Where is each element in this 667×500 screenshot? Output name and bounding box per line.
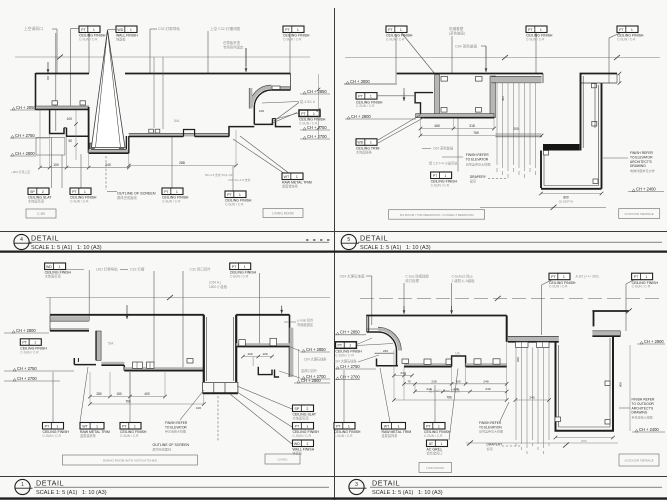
svg-text:FINISH REFER: FINISH REFER — [630, 151, 654, 155]
svg-text:金属装饰条: 金属装饰条 — [282, 184, 299, 189]
svg-text:PT: PT — [227, 193, 232, 197]
svg-text:C64 大理石线条: C64 大理石线条 — [304, 357, 327, 362]
svg-text:窗帘: 窗帘 — [470, 179, 476, 184]
svg-text:50: 50 — [68, 139, 72, 143]
svg-text:WD: WD — [117, 28, 123, 32]
svg-text:800: 800 — [581, 439, 586, 443]
svg-text:100: 100 — [196, 406, 201, 410]
svg-text:1: 1 — [438, 424, 440, 428]
svg-text:200: 200 — [513, 127, 519, 131]
svg-text:C-SUN / C-R: C-SUN / C-R — [293, 434, 312, 438]
svg-text:766: 766 — [446, 396, 452, 400]
svg-text:TO ELEVATOR: TO ELEVATOR — [466, 157, 489, 161]
svg-text:ARCHITECT'S: ARCHITECT'S — [632, 406, 654, 410]
svg-text:50 DEPTH: 50 DEPTH — [559, 200, 573, 204]
svg-text:CH + 3000: CH + 3000 — [350, 79, 370, 84]
svg-text:CH + 2750: CH + 2750 — [340, 364, 360, 369]
svg-text:1: 1 — [176, 190, 178, 194]
svg-text:SP: SP — [30, 190, 35, 194]
svg-text:DETAIL: DETAIL — [31, 234, 59, 243]
svg-text:1: 1 — [96, 424, 98, 428]
svg-text:70: 70 — [407, 379, 411, 383]
svg-text:ARCHITECT'S: ARCHITECT'S — [630, 160, 652, 164]
svg-text:DRAWING: DRAWING — [630, 164, 646, 168]
svg-text:防烟垂壁: 防烟垂壁 — [449, 26, 464, 31]
svg-text:280: 280 — [96, 392, 102, 396]
svg-text:e-mail 扣件: e-mail 扣件 — [297, 318, 314, 323]
svg-text:LIVING ROOM: LIVING ROOM — [272, 212, 294, 216]
svg-text:A.DX (+++ 300): A.DX (+++ 300) — [576, 275, 599, 279]
svg-text:C-SUN / C-R: C-SUN / C-R — [43, 434, 62, 438]
svg-text:1: 1 — [130, 28, 132, 32]
svg-text:金属装饰条: 金属装饰条 — [80, 433, 97, 438]
svg-text:参见建筑大样图: 参见建筑大样图 — [632, 415, 653, 420]
svg-text:1: 1 — [93, 28, 95, 32]
svg-text:C-SUN / C-R: C-SUN / C-R — [431, 184, 450, 188]
svg-text:PT: PT — [122, 424, 127, 428]
svg-text:C-SUN / C-R: C-SUN / C-R — [617, 38, 636, 42]
svg-text:CH + 2800: CH + 2800 — [351, 114, 371, 119]
svg-text:248: 248 — [453, 387, 458, 391]
svg-text:1: 1 — [84, 190, 86, 194]
svg-text:CH + 2800: CH + 2800 — [16, 328, 36, 333]
svg-text:收口处理: 收口处理 — [405, 278, 419, 283]
svg-text:769: 769 — [473, 131, 479, 135]
svg-text:电梯详图参见大样: 电梯详图参见大样 — [630, 168, 655, 173]
svg-text:400: 400 — [144, 392, 150, 396]
svg-text:1: 1 — [398, 424, 400, 428]
svg-text:WT: WT — [284, 175, 290, 179]
svg-text:LIVING: LIVING — [278, 458, 289, 462]
svg-text:CH + 2850: CH + 2850 — [307, 89, 327, 94]
svg-text:TO OUTDOOR: TO OUTDOOR — [632, 402, 655, 406]
svg-text:DETAIL: DETAIL — [372, 479, 400, 488]
svg-text:5/A: 5/A — [108, 342, 114, 346]
svg-text:PT: PT — [336, 424, 341, 428]
svg-text:CH + 2400: CH + 2400 — [639, 427, 659, 432]
svg-text:C64 茶色玻璃: C64 茶色玻璃 — [433, 146, 454, 151]
svg-text:C-betxe2 防火: C-betxe2 防火 — [452, 274, 474, 279]
svg-text:铝 1.5 7+4 小窗帘轨: 铝 1.5 7+4 小窗帘轨 — [429, 161, 458, 166]
svg-text:1: 1 — [297, 28, 299, 32]
svg-text:PT: PT — [528, 28, 533, 32]
svg-text:SCALE 1: 5 (A1) 1: 10 (A3): SCALE 1: 5 (A1) 1: 10 (A3) — [36, 490, 107, 496]
svg-text:PT: PT — [338, 344, 343, 348]
svg-text:饰面板固定: 饰面板固定 — [297, 322, 314, 327]
svg-text:248: 248 — [483, 379, 488, 383]
svg-text:CH + 2750: CH + 2750 — [17, 366, 37, 371]
svg-text:PT: PT — [164, 190, 169, 194]
svg-text:WD: WD — [294, 442, 300, 446]
svg-text:C64 3m+1.8 支架: C64 3m+1.8 支架 — [228, 177, 251, 182]
svg-text:1: 1 — [631, 28, 633, 32]
svg-text:100: 100 — [247, 352, 252, 356]
svg-text:FINISH REFER: FINISH REFER — [466, 153, 490, 157]
svg-text:木饰面吊顶: 木饰面吊顶 — [28, 199, 45, 204]
svg-text:PT: PT — [433, 174, 438, 178]
svg-text:C-bac 防霉硅胶: C-bac 防霉硅胶 — [405, 274, 429, 279]
svg-text:TO ELEVATOR: TO ELEVATOR — [630, 155, 653, 159]
svg-text:PT: PT — [426, 424, 431, 428]
svg-text:SCALE 1: 5 (A1) 1: 10 (A3): SCALE 1: 5 (A1) 1: 10 (A3) — [31, 245, 102, 251]
svg-text:1: 1 — [370, 141, 372, 145]
svg-text:1: 1 — [313, 112, 315, 116]
svg-text:C-SUN / C-R: C-SUN / C-R — [70, 200, 89, 204]
svg-text:CH + 2700: CH + 2700 — [307, 134, 327, 139]
svg-text:CH + 2700: CH + 2700 — [17, 376, 37, 381]
svg-text:CH + 2850: CH + 2850 — [16, 105, 36, 110]
svg-text:铝 4.5/1 #: 铝 4.5/1 # — [300, 99, 315, 104]
svg-text:C64 大理石线条: C64 大理石线条 — [334, 359, 357, 364]
svg-text:窗帘盒参见大样图: 窗帘盒参见大样图 — [466, 162, 491, 167]
svg-text:C-SUN / C-R: C-SUN / C-R — [632, 285, 651, 289]
svg-text:PT: PT — [551, 275, 556, 279]
svg-text:PT: PT — [358, 94, 363, 98]
svg-text:100: 100 — [67, 117, 73, 121]
svg-text:CH + 2800: CH + 2800 — [15, 151, 35, 156]
svg-text:WT: WT — [384, 424, 390, 428]
svg-text:(茶色玻璃): (茶色玻璃) — [449, 31, 465, 36]
svg-text:1: 1 — [440, 442, 442, 446]
svg-text:C64 茶色玻璃: C64 茶色玻璃 — [455, 44, 477, 49]
svg-text:240: 240 — [383, 349, 388, 353]
svg-text:C32 灯槽: C32 灯槽 — [130, 267, 145, 272]
svg-text:木饰面吊顶: 木饰面吊顶 — [45, 274, 62, 279]
svg-text:屏风完成面线: 屏风完成面线 — [153, 447, 172, 452]
svg-text:C-SUN / C-R: C-SUN / C-R — [335, 353, 354, 357]
svg-text:专用吊件固定: 专用吊件固定 — [223, 45, 244, 50]
svg-text:C-5R: C-5R — [37, 212, 45, 216]
svg-text:465: 465 — [434, 124, 440, 128]
svg-text:1: 1 — [400, 28, 402, 32]
svg-text:上空调风口: 上空调风口 — [24, 26, 43, 31]
svg-text:218: 218 — [426, 387, 431, 391]
svg-text:306: 306 — [501, 96, 505, 101]
svg-text:CH + 2400: CH + 2400 — [636, 186, 656, 191]
svg-text:1: 1 — [34, 341, 36, 345]
svg-text:PT: PT — [72, 190, 77, 194]
svg-text:5: 5 — [347, 237, 350, 243]
svg-text:FINISH REFER: FINISH REFER — [632, 398, 656, 402]
svg-text:LED 灯带导轨: LED 灯带导轨 — [96, 267, 118, 272]
svg-text:DRAPERY: DRAPERY — [470, 175, 487, 179]
svg-text:C64 大理石饰面: C64 大理石饰面 — [340, 274, 365, 279]
svg-text:PT: PT — [619, 28, 624, 32]
svg-text:OUTDOOR TERRACE: OUTDOOR TERRACE — [624, 212, 653, 216]
svg-text:PT: PT — [301, 112, 306, 116]
svg-text:WD: WD — [46, 265, 52, 269]
svg-text:6P+1.5 支架 50(1.2)#: 6P+1.5 支架 50(1.2)# — [205, 172, 233, 177]
svg-text:SP: SP — [295, 407, 300, 411]
svg-text:PT: PT — [232, 265, 237, 269]
svg-text:饰面板: 饰面板 — [116, 37, 126, 42]
svg-text:240: 240 — [485, 387, 490, 391]
svg-text:参见电梯大样图: 参见电梯大样图 — [165, 429, 186, 434]
svg-text:C-SUN / C-R: C-SUN / C-R — [225, 203, 244, 207]
svg-text:1: 1 — [134, 424, 136, 428]
svg-text:OUTLINE OF SCREEN: OUTLINE OF SCREEN — [117, 192, 156, 196]
svg-text:2: 2 — [306, 407, 308, 411]
svg-text:C-SUN / C-R: C-SUN / C-R — [162, 200, 181, 204]
svg-text:窗帘盒参见大样图: 窗帘盒参见大样图 — [479, 429, 503, 434]
svg-text:1800 小金板: 1800 小金板 — [209, 284, 228, 289]
svg-text:PT: PT — [388, 28, 393, 32]
svg-text:(C64 A.): (C64 A.) — [209, 281, 221, 285]
svg-text:1: 1 — [59, 265, 61, 269]
svg-text:PT: PT — [45, 424, 50, 428]
svg-text:+(88) 灯具上空: +(88) 灯具上空 — [11, 169, 30, 174]
svg-text:238: 238 — [431, 379, 436, 383]
svg-text:PT: PT — [634, 275, 639, 279]
svg-text:240: 240 — [529, 396, 534, 400]
svg-text:CH + 2850: CH + 2850 — [306, 347, 326, 352]
svg-text:屏风完成面线: 屏风完成面线 — [117, 195, 137, 200]
svg-text:1: 1 — [296, 175, 298, 179]
svg-text:2: 2 — [42, 190, 44, 194]
svg-text:288: 288 — [179, 161, 185, 165]
svg-text:C-SUN / C-R: C-SUN / C-R — [283, 38, 302, 42]
svg-text:OUTLINE OF SCREEN: OUTLINE OF SCREEN — [153, 443, 190, 447]
svg-text:200: 200 — [516, 357, 520, 362]
svg-text:DRAWING: DRAWING — [632, 411, 648, 415]
svg-text:C-SUN / C-R: C-SUN / C-R — [386, 38, 405, 42]
svg-text:800: 800 — [619, 382, 623, 387]
svg-text:木饰面吊顶: 木饰面吊顶 — [293, 416, 310, 421]
svg-text:100: 100 — [53, 163, 59, 167]
svg-text:C32 灯带导轨: C32 灯带导轨 — [158, 26, 180, 31]
svg-text:3: 3 — [355, 482, 358, 488]
svg-text:C-SUN / C-R: C-SUN / C-R — [356, 104, 375, 108]
svg-text:1: 1 — [370, 94, 372, 98]
svg-text:C-SUN / C-R: C-SUN / C-R — [424, 434, 443, 438]
svg-text:C-SUN / C-R: C-SUN / C-R — [526, 38, 545, 42]
svg-text:LIVIN ROOM: LIVIN ROOM — [426, 466, 444, 470]
svg-text:PT: PT — [22, 341, 27, 345]
svg-text:C-SUN / C-R: C-SUN / C-R — [20, 350, 39, 354]
svg-text:PT: PT — [295, 424, 300, 428]
svg-text:C32 风口百叶: C32 风口百叶 — [190, 267, 212, 272]
svg-text:饰面板: 饰面板 — [293, 451, 303, 456]
svg-text:金属装饰条: 金属装饰条 — [382, 433, 399, 438]
svg-text:1: 1 — [21, 482, 24, 488]
svg-text:WD: WD — [357, 141, 363, 145]
svg-text:PT: PT — [81, 28, 86, 32]
svg-text:1: 1 — [445, 174, 447, 178]
svg-text:1: 1 — [244, 265, 246, 269]
svg-text:C-SUN / C-R: C-SUN / C-R — [334, 434, 353, 438]
svg-text:1: 1 — [563, 275, 565, 279]
svg-text:150: 150 — [116, 392, 122, 396]
svg-text:CH + 2700: CH + 2700 — [340, 374, 360, 379]
svg-text:C-SUN / C-R: C-SUN / C-R — [230, 275, 249, 279]
svg-text:240: 240 — [400, 371, 405, 375]
svg-text:4: 4 — [20, 237, 23, 243]
svg-text:SCALE 1: 5 (A1) 1: 10 (A3): SCALE 1: 5 (A1) 1: 10 (A3) — [360, 245, 431, 251]
svg-text:1: 1 — [56, 424, 58, 428]
svg-text:C-SUN / C-R: C-SUN / C-R — [120, 434, 139, 438]
svg-text:1: 1 — [348, 424, 350, 428]
svg-text:窗帘: 窗帘 — [487, 446, 493, 451]
svg-text:C-SUN / C-R: C-SUN / C-R — [549, 285, 568, 289]
svg-text:DINING ROOM WITH VISTA KITCHEN: DINING ROOM WITH VISTA KITCHEN — [103, 459, 157, 463]
svg-text:CH + 2750: CH + 2750 — [15, 133, 35, 138]
svg-text:1 级防火 A级板: 1 级防火 A级板 — [452, 278, 476, 283]
svg-text:CH + 2900: CH + 2900 — [644, 339, 664, 344]
svg-text:100: 100 — [259, 109, 264, 113]
svg-text:DETAIL: DETAIL — [360, 234, 388, 243]
svg-text:SCALE 1: 5 (A1) 1: 10 (A3): SCALE 1: 5 (A1) 1: 10 (A3) — [372, 490, 443, 496]
svg-text:铝合金风口: 铝合金风口 — [427, 451, 443, 456]
svg-text:WT: WT — [82, 424, 88, 428]
svg-text:OUTDOOR TERRACE: OUTDOOR TERRACE — [624, 459, 653, 463]
svg-text:PT: PT — [285, 28, 290, 32]
svg-text:1: 1 — [306, 442, 308, 446]
svg-text:铝风口百叶: 铝风口百叶 — [301, 368, 318, 373]
svg-text:木饰面线条: 木饰面线条 — [356, 149, 373, 154]
svg-text:318: 318 — [469, 124, 475, 128]
svg-text:1: 1 — [239, 193, 241, 197]
svg-text:DETAIL: DETAIL — [36, 479, 64, 488]
svg-text:100: 100 — [262, 352, 267, 356]
svg-text:上空 C32 灯槽详图: 上空 C32 灯槽详图 — [210, 26, 241, 31]
svg-text:CH + 2850: CH + 2850 — [340, 330, 360, 335]
svg-text:1: 1 — [540, 28, 542, 32]
svg-text:5/A: 5/A — [174, 119, 180, 123]
svg-text:C-SUN / C-R: C-SUN / C-R — [299, 122, 318, 126]
svg-text:1: 1 — [306, 424, 308, 428]
svg-text:C-SUN / C-R: C-SUN / C-R — [79, 38, 98, 42]
svg-text:5/A ROOM / TWN BEDROOM / CONNE: 5/A ROOM / TWN BEDROOM / CONNECT BEDROOM — [400, 213, 474, 217]
svg-text:1: 1 — [646, 275, 648, 279]
svg-text:石膏板吊顶: 石膏板吊顶 — [223, 40, 241, 45]
svg-text:1: 1 — [349, 344, 351, 348]
svg-text:CH + 2800: CH + 2800 — [301, 378, 321, 383]
